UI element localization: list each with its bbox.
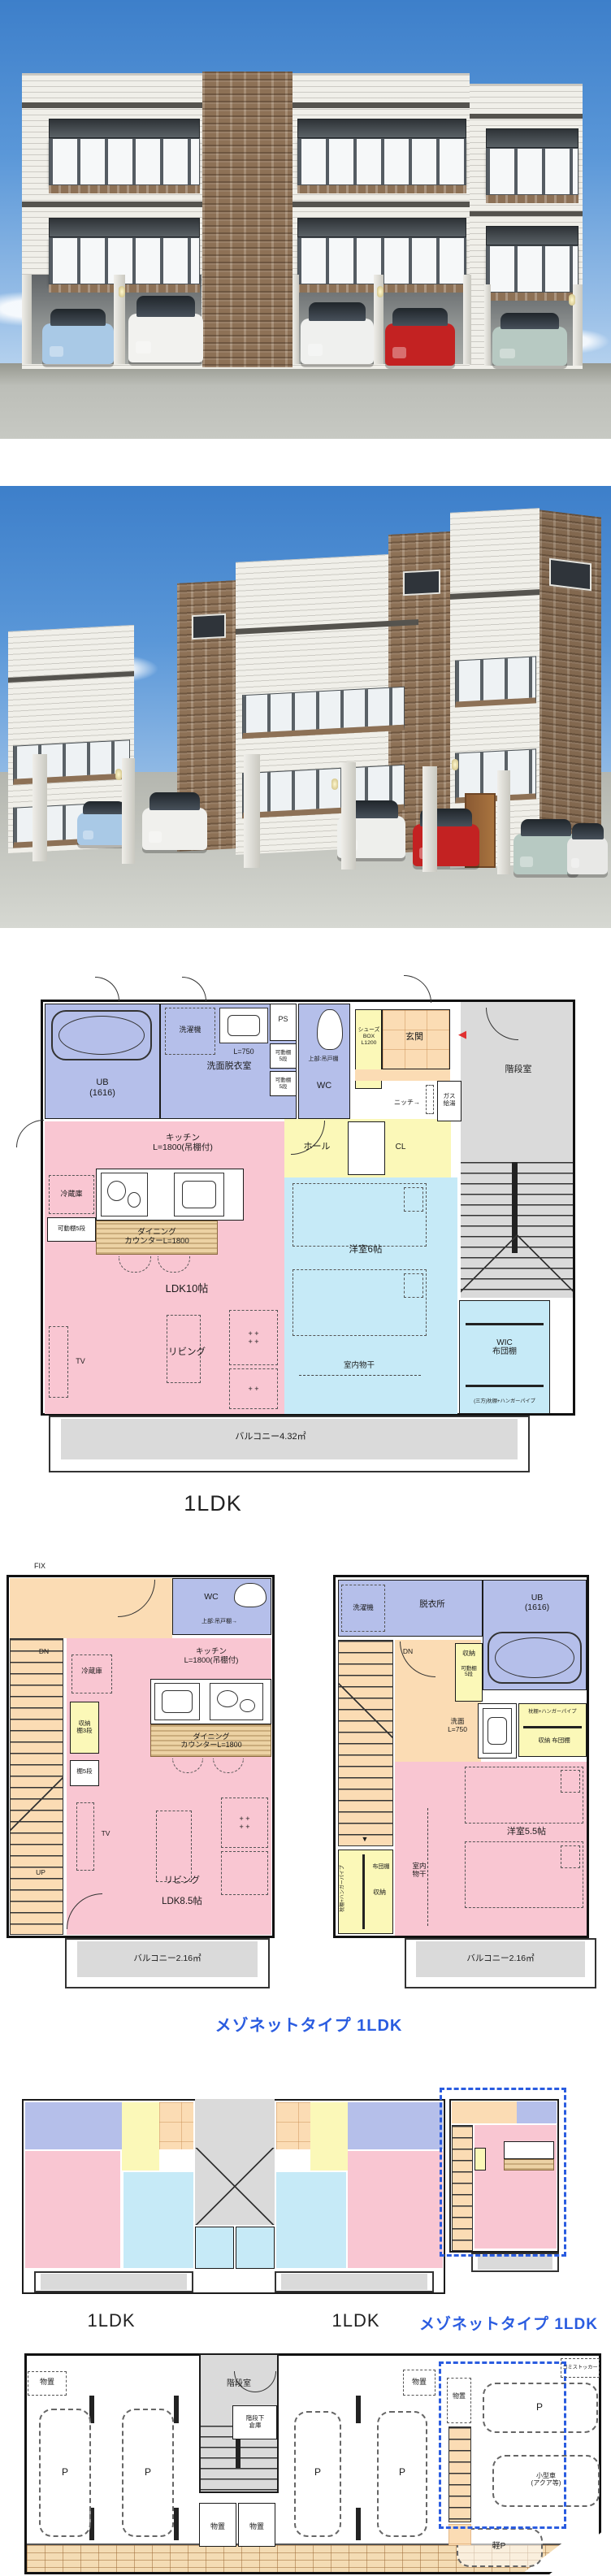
unitB-bath — [348, 2102, 443, 2149]
unitB-bedroom — [276, 2172, 346, 2268]
car-silver — [567, 837, 608, 874]
label: 可動棚 5段 — [268, 1072, 298, 1095]
label: ニッチ→ — [388, 1097, 426, 1108]
column — [292, 275, 299, 364]
porch-lamp — [569, 294, 575, 306]
label: LDK10帖 — [136, 1281, 237, 1297]
label: リビング — [140, 1874, 224, 1887]
porch-lamp — [452, 759, 458, 770]
label: 冷蔵庫 — [49, 1188, 94, 1199]
unitA-bath — [25, 2102, 122, 2149]
label: 上部:吊戸棚 — [291, 1055, 356, 1065]
car-white-suv — [142, 808, 207, 850]
label: (三方)枕棚+ハンガーパイプ — [457, 1396, 552, 1407]
balcony-floor — [281, 2274, 427, 2290]
label: LDK8.5帖 — [136, 1895, 227, 1909]
brick-accent-column — [202, 72, 292, 367]
column — [422, 766, 437, 872]
wic-box — [236, 2227, 275, 2269]
column — [463, 275, 471, 364]
label: 収納 棚3段 — [70, 1710, 99, 1746]
label: 冷蔵庫 — [70, 1666, 114, 1676]
balcony-glass — [242, 687, 405, 739]
p2-tv — [76, 1802, 94, 1871]
label: ダイニング カウンターL=1800 — [104, 1222, 210, 1253]
label: 物置 — [200, 2521, 236, 2532]
label: 上部:吊戸棚→ — [180, 1617, 258, 1627]
p2-stove — [210, 1683, 263, 1720]
p3-stair-diag — [338, 1666, 393, 1755]
column — [341, 762, 356, 870]
label: 物置 — [239, 2521, 275, 2532]
unitB-genkan — [276, 2102, 310, 2149]
maison-highlight — [440, 2088, 566, 2257]
column — [122, 758, 135, 864]
label: キッチン L=1800(吊棚付) — [153, 1645, 270, 1669]
closet-cl — [348, 1121, 385, 1175]
label: UP — [28, 1867, 54, 1878]
label: 階段下 倉庫 — [234, 2410, 276, 2435]
property-flyer: 1LDK + + + ++ +◀UB (1616)洗濯機L=750PS洗面脱衣室… — [0, 0, 611, 2576]
caption-unit-a: 1LDK — [46, 2310, 176, 2331]
label: 洗濯機 — [341, 1602, 385, 1613]
porch-lamp — [115, 769, 122, 780]
label: 枕棚+ハンガーパイプ — [520, 1706, 585, 1717]
label: 収納 布団棚 — [525, 1736, 583, 1746]
label: P — [528, 2400, 551, 2414]
p2-table — [156, 1811, 192, 1882]
label: WIC 布団棚 — [471, 1334, 538, 1360]
bed-pillow — [404, 1273, 423, 1298]
column — [32, 754, 47, 861]
label: 収納 — [362, 1887, 396, 1897]
hanger-pipe — [466, 1323, 544, 1325]
label: バルコニー4.32㎡ — [201, 1430, 340, 1444]
maison-balcony — [478, 2255, 552, 2270]
door-arc — [404, 975, 431, 1003]
balcony-glass — [13, 739, 130, 785]
label: リビング — [145, 1346, 229, 1360]
label: UB (1616) — [71, 1074, 133, 1102]
label: P — [136, 2465, 159, 2479]
label: 玄関 — [388, 1030, 440, 1043]
label: 軽P — [481, 2540, 517, 2552]
window — [192, 614, 226, 640]
floor-plan-1ldk: 1LDK + + + ++ +◀UB (1616)洗濯機L=750PS洗面脱衣室… — [0, 959, 611, 1544]
wic-box — [195, 2227, 234, 2269]
bathtub-inner — [58, 1016, 145, 1055]
wash-sink — [219, 1008, 268, 1043]
hanger-pipe — [523, 1726, 582, 1728]
window — [403, 570, 440, 596]
wall-stub — [174, 2508, 179, 2540]
door-arc — [182, 977, 206, 1001]
label: 脱衣所 — [398, 1598, 466, 1611]
sofa: + + + + — [229, 1310, 278, 1365]
label: ▼ — [356, 1833, 374, 1845]
unitA-bedroom — [123, 2172, 193, 2268]
label: 枕棚+ハンガーパイプ — [338, 1843, 348, 1934]
balcony — [486, 128, 578, 203]
car-red — [385, 323, 455, 366]
label: 洗濯機 — [167, 1024, 214, 1035]
stair-roof-diag — [195, 2148, 275, 2225]
label: 室内 物干 — [405, 1859, 434, 1882]
entry-arrow: ◀ — [453, 1027, 471, 1042]
label: 階段室 — [481, 1063, 556, 1076]
niche — [426, 1085, 434, 1114]
column — [484, 284, 491, 366]
exterior-render-front — [0, 0, 611, 439]
label: 棚5段 — [67, 1767, 102, 1777]
bed-pillow — [404, 1187, 423, 1212]
label: P — [391, 2465, 414, 2479]
bed-pillow — [561, 1770, 580, 1793]
label: シューズ BOX L1200 — [353, 1019, 384, 1055]
unitB-ldk — [348, 2151, 443, 2268]
stair-diag — [518, 1229, 573, 1298]
label: 可動棚5段 — [46, 1224, 97, 1234]
tv-board — [49, 1326, 68, 1398]
label: DN — [395, 1646, 421, 1657]
car-teal — [492, 327, 567, 366]
p2-sink — [154, 1683, 200, 1720]
label: 洋室6帖 — [320, 1243, 411, 1257]
unitB-hall — [310, 2102, 348, 2171]
ground — [0, 363, 611, 439]
label: P — [306, 2465, 329, 2479]
label: TV — [70, 1355, 91, 1367]
stair-diag — [461, 1229, 518, 1298]
caption-1ldk: 1LDK — [148, 1491, 278, 1516]
p3-tub-inner — [495, 1637, 574, 1678]
label: DN — [31, 1646, 57, 1657]
car-white-suv — [128, 314, 203, 362]
label: CL — [387, 1141, 414, 1153]
floor-plans-maisonette: メゾネットタイプ 1LDK + + + +FIXWC上部:吊戸棚→DN冷蔵庫収納… — [0, 1552, 611, 2056]
drying-line — [299, 1375, 421, 1376]
unitA-genkan — [159, 2102, 193, 2149]
car-light-blue — [42, 323, 114, 364]
p3-vanity-sink — [483, 1708, 512, 1754]
p2-sofa — [221, 1851, 268, 1895]
label: キッチン L=1800(吊棚付) — [114, 1130, 252, 1156]
label: 物置 — [401, 2376, 437, 2387]
balcony-floor — [41, 2274, 187, 2290]
toilet — [317, 1009, 343, 1050]
wall-stub — [356, 2396, 361, 2423]
label: 可動棚 5段 — [453, 1661, 484, 1682]
caption-maisonette-1ldk: メゾネットタイプ 1LDK — [138, 2012, 479, 2036]
door-arc — [95, 977, 119, 1001]
label: 物置 — [444, 2391, 474, 2401]
sofa: + + — [229, 1368, 278, 1409]
label: WC — [305, 1079, 343, 1092]
unitA-hall — [122, 2102, 159, 2171]
genkan-step — [355, 1069, 450, 1081]
label: PS — [270, 1014, 297, 1025]
p2-toilet — [234, 1583, 266, 1607]
label: バルコニー2.16㎡ — [432, 1952, 569, 1965]
balcony — [49, 119, 200, 193]
hanger-pipe — [466, 1385, 544, 1387]
label: FIX — [23, 1560, 57, 1572]
caption-unit-b: 1LDK — [291, 2310, 421, 2331]
balcony — [486, 226, 578, 301]
label: 洗面 L=750 — [439, 1715, 476, 1737]
porch-lamp — [119, 286, 125, 297]
maison-highlight — [439, 2361, 566, 2529]
label: TV — [96, 1828, 115, 1839]
label: P — [54, 2465, 76, 2479]
parking-plan: 物置階段室階段下 倉庫PPPPP物置物置物置物置小型車 (アクア等)軽Pゴミスト… — [0, 2348, 611, 2576]
floor-plan-overall: 1LDK 1LDK メゾネットタイプ 1LDK — [0, 2076, 611, 2344]
door-arc — [16, 1120, 44, 1147]
label: ホール — [291, 1141, 343, 1153]
label: バルコニー2.16㎡ — [99, 1952, 236, 1965]
stove — [101, 1173, 148, 1216]
column — [497, 770, 510, 874]
label: 収納 — [453, 1648, 484, 1659]
wall-stub — [356, 2508, 361, 2540]
bed-pillow — [561, 1845, 580, 1868]
exterior-render-perspective — [0, 486, 611, 928]
label: ゴミストッカー — [557, 2361, 603, 2374]
label: ガス 給湯 — [438, 1086, 461, 1115]
label: 物置 — [29, 2376, 65, 2387]
unitA-ldk — [25, 2151, 120, 2268]
label: ダイニング カウンターL=1800 — [161, 1727, 262, 1754]
kitchen-sink — [174, 1173, 224, 1216]
label: 小型車 (アクア等) — [510, 2467, 582, 2491]
porch-lamp — [377, 286, 383, 297]
label: 室内物干 — [317, 1360, 401, 1373]
porch-lamp — [331, 778, 338, 790]
label: 布団棚 — [364, 1863, 398, 1872]
caption-unit-maisonette: メゾネットタイプ 1LDK — [413, 2312, 604, 2334]
wall-stub — [174, 2396, 179, 2423]
balcony — [297, 119, 466, 193]
eave — [470, 114, 583, 119]
car-white-minivan — [301, 319, 374, 364]
label: 階段室 — [211, 2378, 266, 2390]
p2-sofa: + + + + — [221, 1798, 268, 1848]
column — [244, 754, 260, 868]
p2-stair-diag — [10, 1763, 63, 1845]
eave — [470, 211, 583, 216]
label: L=750 — [218, 1047, 270, 1057]
label: 洋室5.5帖 — [476, 1825, 577, 1838]
window — [549, 558, 591, 591]
label: UB (1616) — [507, 1589, 567, 1615]
balcony-glass — [455, 656, 536, 707]
column — [22, 275, 32, 364]
label: WC — [193, 1591, 229, 1603]
